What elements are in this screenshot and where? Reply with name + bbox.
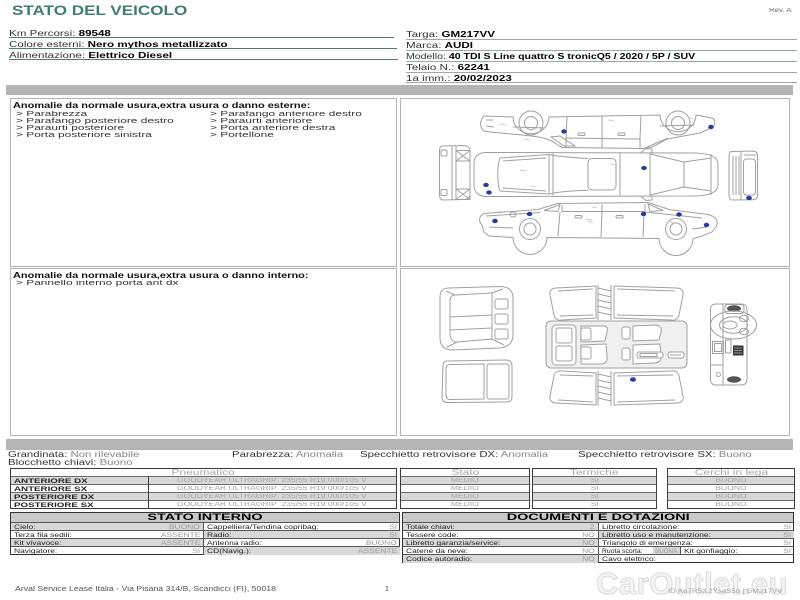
svg-text:D: D bbox=[716, 372, 721, 379]
